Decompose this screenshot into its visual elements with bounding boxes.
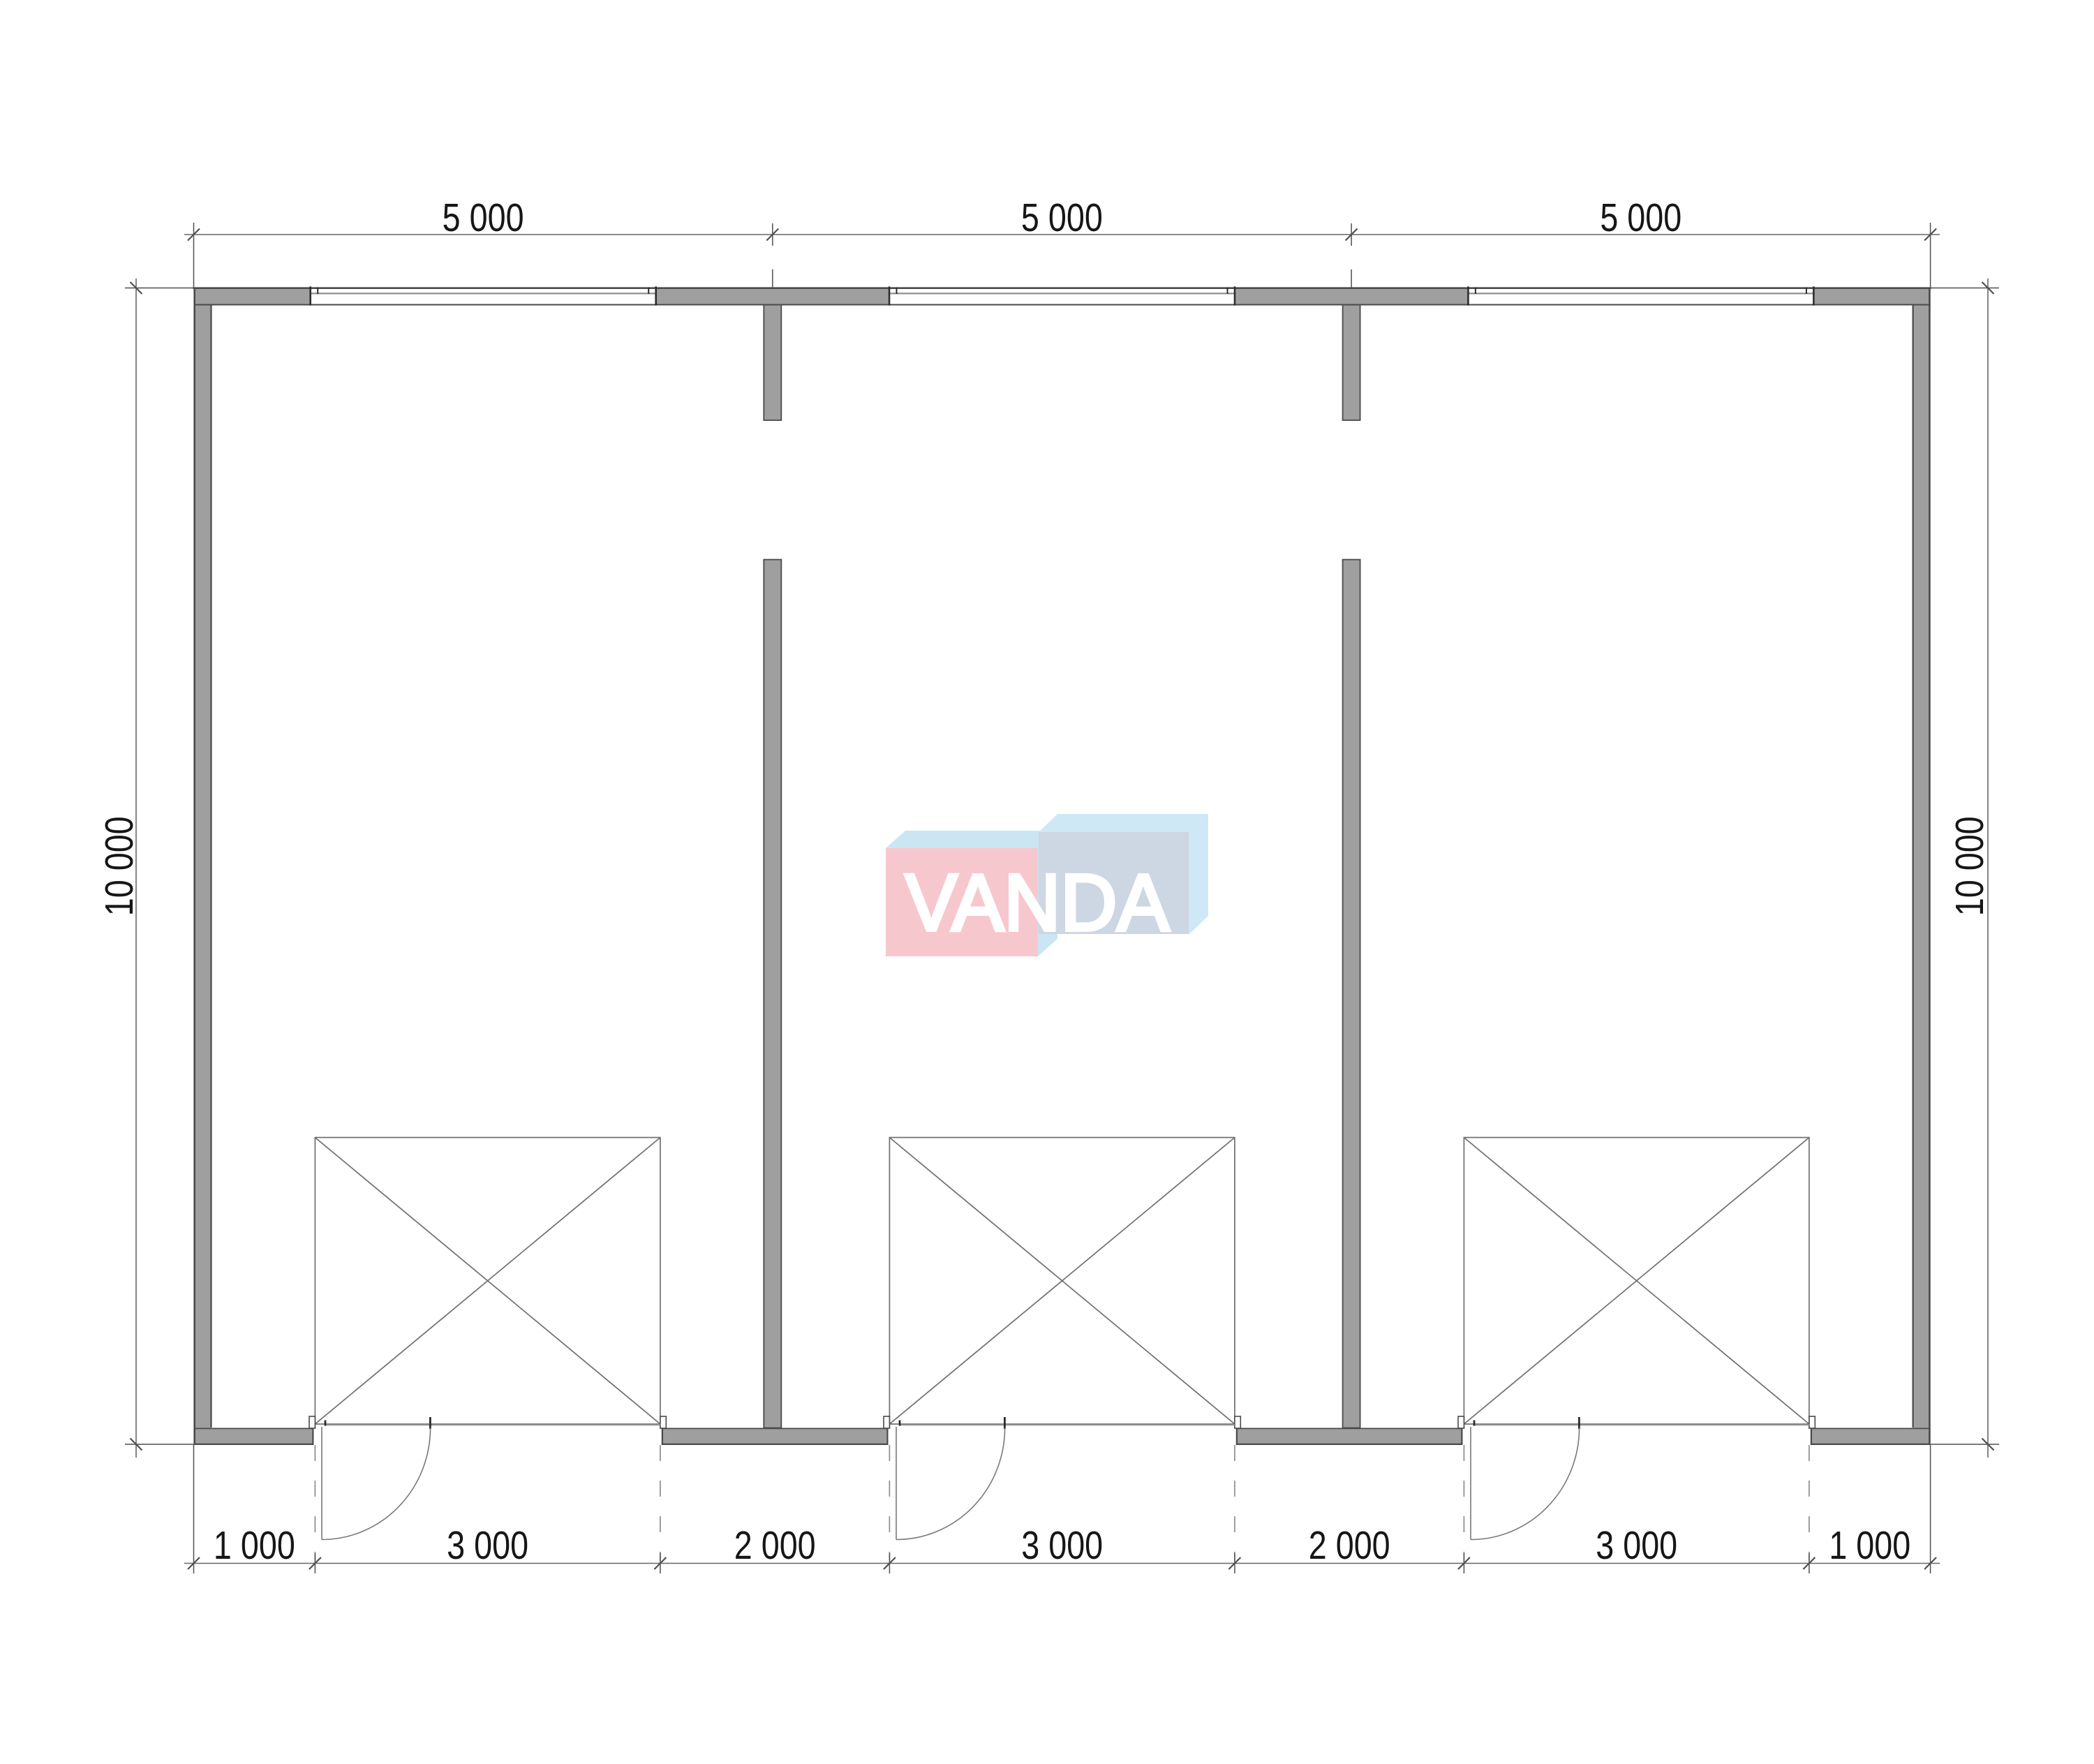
svg-text:VANDA: VANDA <box>905 858 1169 948</box>
svg-text:1 000: 1 000 <box>214 1524 295 1568</box>
svg-text:5 000: 5 000 <box>1021 196 1103 240</box>
svg-text:10 000: 10 000 <box>98 816 142 916</box>
svg-text:10 000: 10 000 <box>1948 816 1992 916</box>
svg-text:2 000: 2 000 <box>1309 1524 1390 1568</box>
svg-text:3 000: 3 000 <box>1021 1524 1103 1568</box>
svg-text:3 000: 3 000 <box>447 1524 528 1568</box>
svg-text:5 000: 5 000 <box>443 196 524 240</box>
svg-text:5 000: 5 000 <box>1600 196 1681 240</box>
svg-text:1 000: 1 000 <box>1829 1524 1910 1568</box>
svg-text:2 000: 2 000 <box>734 1524 816 1568</box>
svg-text:3 000: 3 000 <box>1596 1524 1677 1568</box>
